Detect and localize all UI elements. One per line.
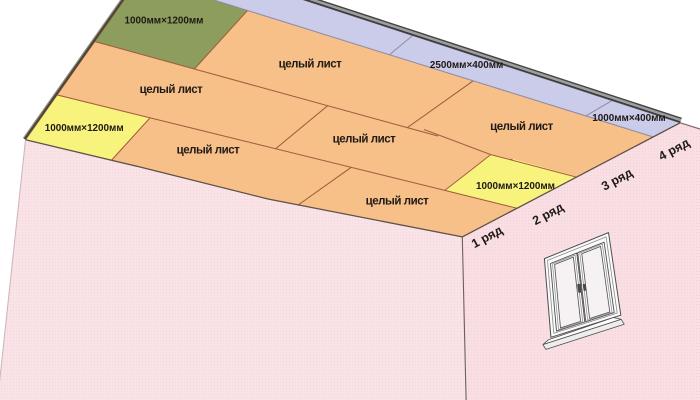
svg-text:целый лист: целый лист xyxy=(279,59,343,71)
svg-text:целый лист: целый лист xyxy=(490,121,554,133)
svg-text:1000мм×1200мм: 1000мм×1200мм xyxy=(45,123,124,134)
svg-text:1000мм×1200мм: 1000мм×1200мм xyxy=(476,181,555,192)
svg-text:целый лист: целый лист xyxy=(177,144,241,156)
svg-text:целый лист: целый лист xyxy=(333,134,397,146)
svg-text:целый лист: целый лист xyxy=(140,84,204,96)
svg-text:1000мм×1200мм: 1000мм×1200мм xyxy=(125,16,204,27)
svg-text:целый лист: целый лист xyxy=(366,196,430,208)
svg-text:1000мм×400мм: 1000мм×400мм xyxy=(592,113,665,124)
svg-text:2500мм×400мм: 2500мм×400мм xyxy=(430,60,503,71)
